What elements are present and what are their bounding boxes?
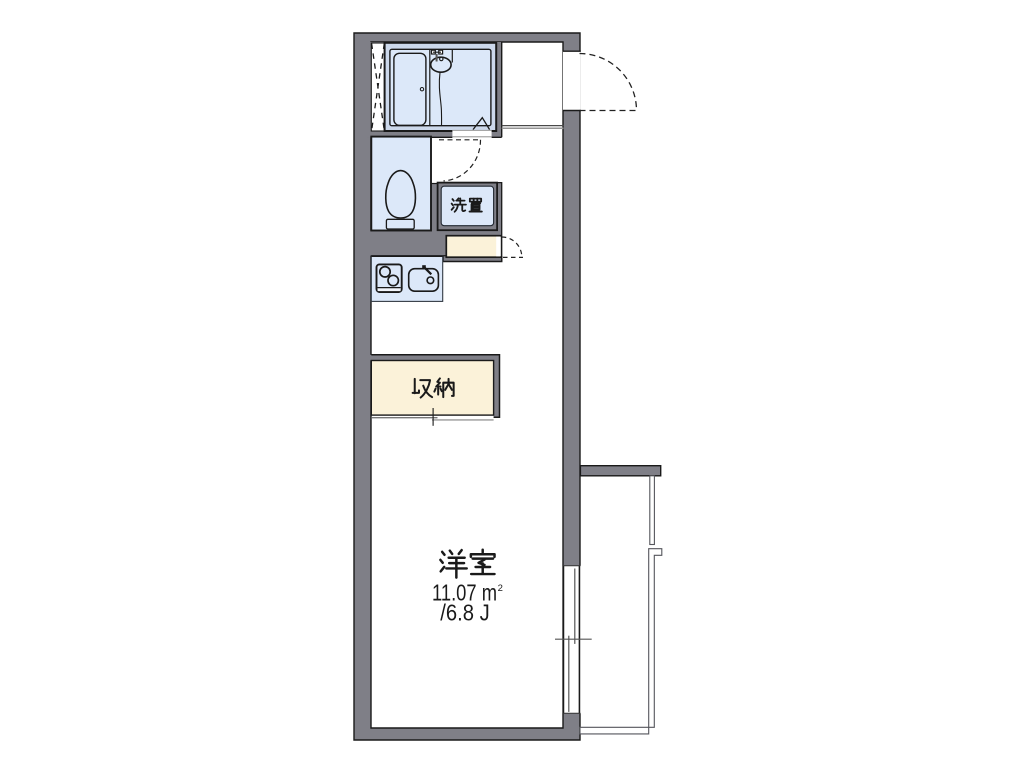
- svg-text:2: 2: [498, 583, 503, 594]
- svg-text:/6.8 J: /6.8 J: [440, 599, 490, 625]
